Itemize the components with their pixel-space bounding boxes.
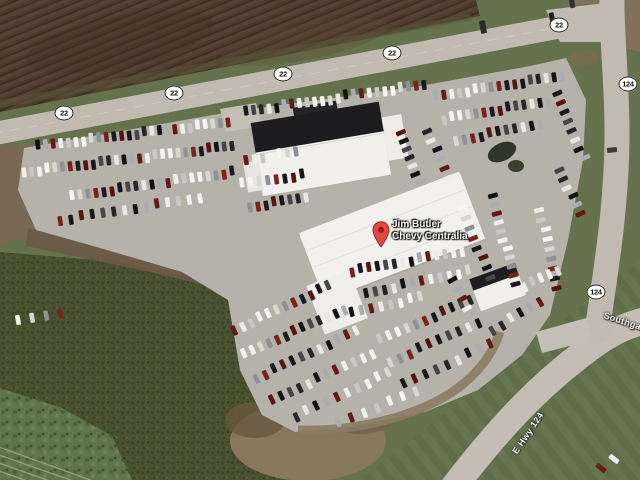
place-label-line2: Chevy Centralia — [392, 231, 468, 243]
satellite-map[interactable]: 2222222222124124 E Hwy 124 Southgate Jim… — [0, 0, 640, 480]
route-shield-22: 22 — [550, 18, 569, 33]
route-shield-22: 22 — [383, 46, 402, 61]
route-shield-22: 22 — [55, 106, 74, 121]
route-shield-22: 22 — [274, 67, 293, 82]
route-shield-22: 22 — [165, 86, 184, 101]
place-label-line1: Jim Butler — [392, 219, 468, 231]
route-shield-124: 124 — [587, 285, 606, 300]
parked-car — [607, 147, 617, 153]
route-shield-124: 124 — [619, 77, 638, 92]
location-pin[interactable] — [372, 221, 390, 248]
satellite-imagery — [0, 0, 640, 480]
place-label: Jim Butler Chevy Centralia — [392, 219, 468, 242]
map-pin-icon — [372, 221, 390, 248]
